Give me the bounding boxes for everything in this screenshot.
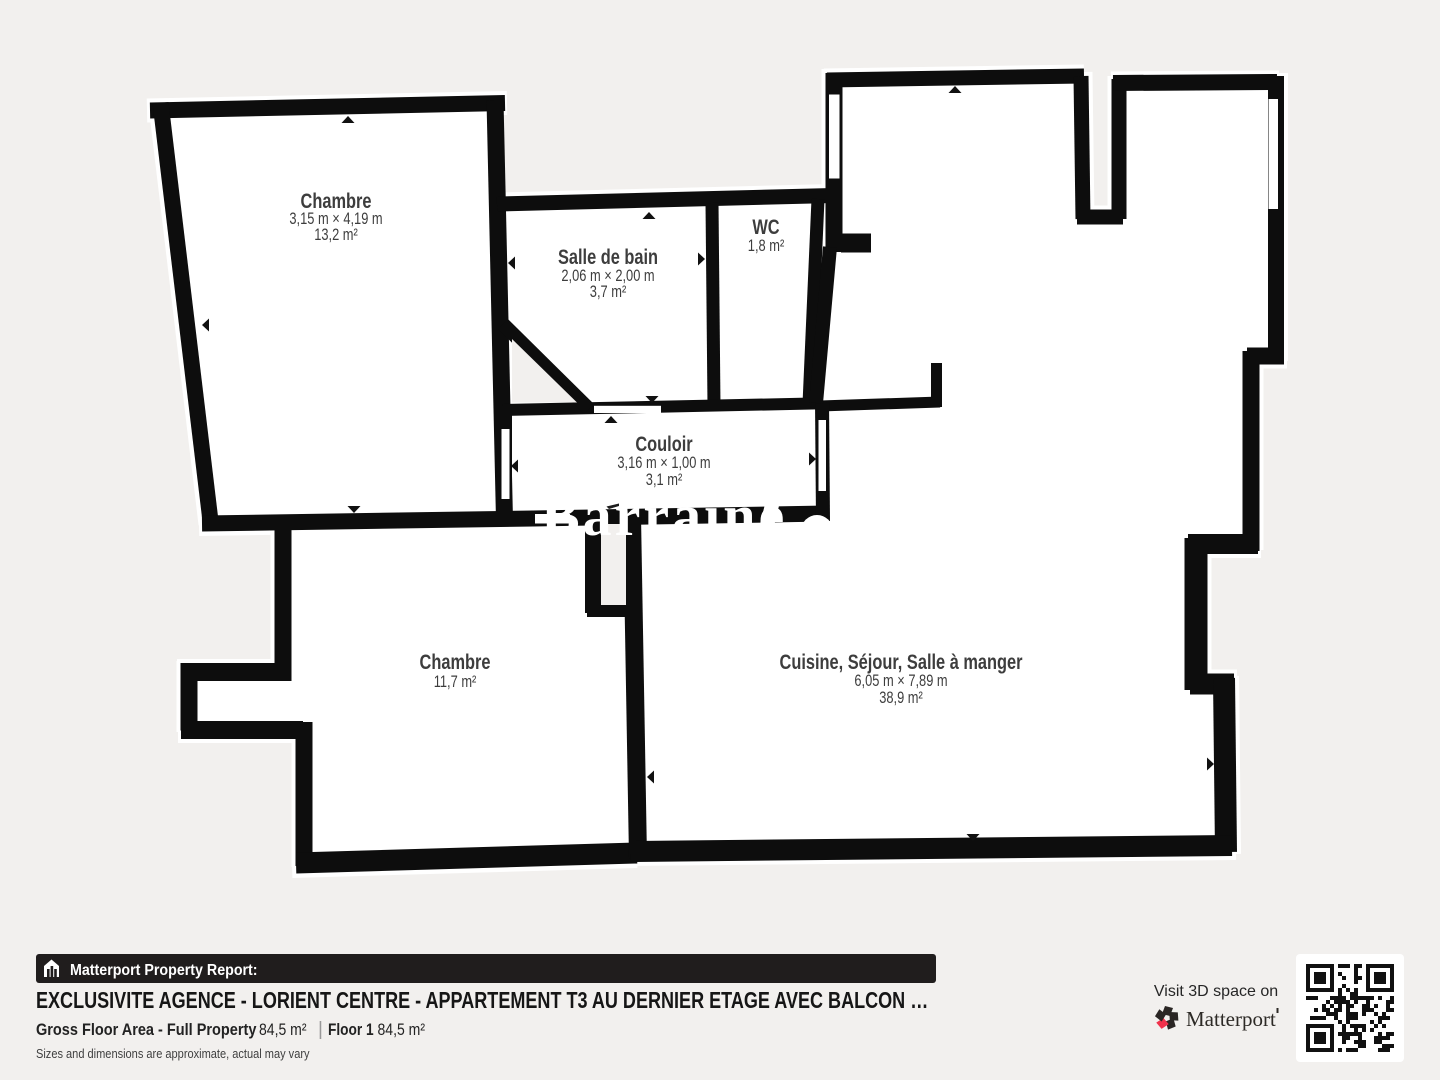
svg-text:Couloir: Couloir bbox=[635, 432, 693, 455]
svg-text:Chambre: Chambre bbox=[301, 189, 372, 212]
svg-text:Visit 3D space on: Visit 3D space on bbox=[1154, 983, 1278, 1000]
svg-text:1,8 m²: 1,8 m² bbox=[748, 238, 785, 256]
svg-text:Chambre: Chambre bbox=[420, 650, 491, 673]
svg-text:Barraine: Barraine bbox=[541, 483, 787, 548]
svg-text:13,2 m²: 13,2 m² bbox=[314, 227, 358, 245]
svg-text:3,7 m²: 3,7 m² bbox=[590, 284, 627, 302]
svg-text:|: | bbox=[318, 1019, 323, 1040]
svg-text:Floor 1: Floor 1 bbox=[328, 1021, 374, 1039]
svg-text:Matterport Property Report:: Matterport Property Report: bbox=[70, 963, 258, 980]
svg-text:Salle de bain: Salle de bain bbox=[558, 245, 658, 268]
svg-text:38,9 m²: 38,9 m² bbox=[879, 690, 923, 708]
svg-text:EXCLUSIVITE AGENCE - LORIENT C: EXCLUSIVITE AGENCE - LORIENT CENTRE - AP… bbox=[36, 988, 928, 1014]
svg-text:Gross Floor Area - Full Proper: Gross Floor Area - Full Property bbox=[36, 1021, 257, 1039]
svg-text:Matterport: Matterport bbox=[1186, 1007, 1276, 1031]
svg-text:6,05 m × 7,89 m: 6,05 m × 7,89 m bbox=[854, 673, 947, 691]
svg-text:Sizes and dimensions are appro: Sizes and dimensions are approximate, ac… bbox=[36, 1046, 310, 1061]
svg-text:Cuisine, Séjour, Salle à mange: Cuisine, Séjour, Salle à manger bbox=[779, 650, 1023, 673]
svg-text:84,5 m²: 84,5 m² bbox=[259, 1021, 306, 1039]
svg-text:WC: WC bbox=[752, 215, 780, 238]
svg-text:11,7 m²: 11,7 m² bbox=[434, 674, 477, 692]
svg-text:84,5 m²: 84,5 m² bbox=[378, 1021, 425, 1039]
svg-text:3,16 m × 1,00 m: 3,16 m × 1,00 m bbox=[617, 455, 710, 473]
